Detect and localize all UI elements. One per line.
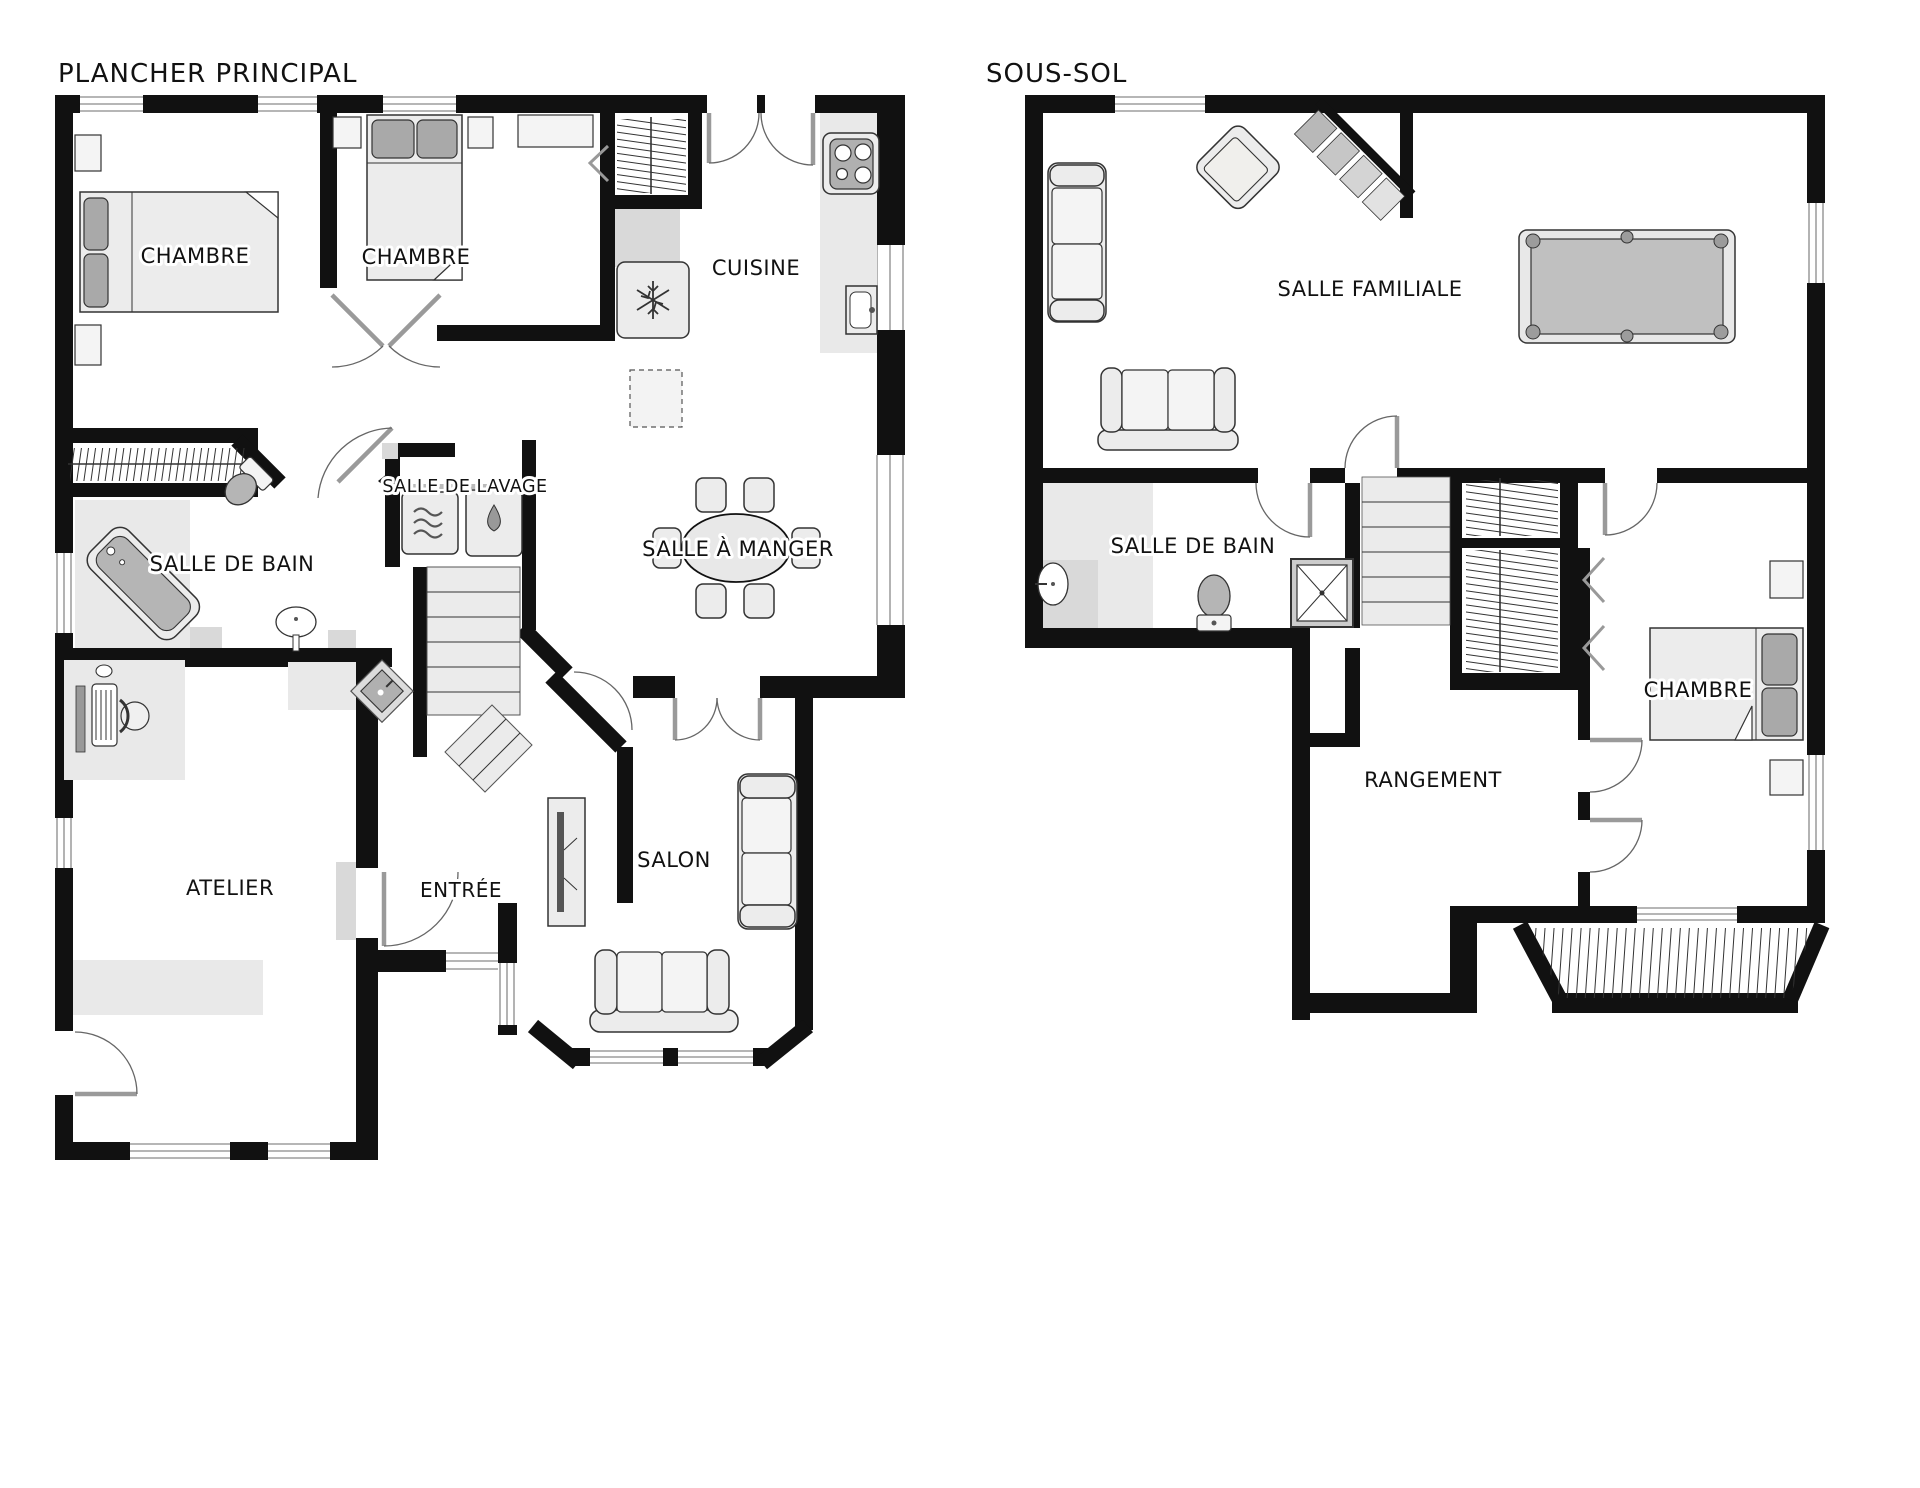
toilet — [1197, 575, 1231, 631]
sofa-cushion — [662, 952, 707, 1012]
straight-stairs — [1362, 477, 1450, 625]
plan-title-basement: SOUS-SOL — [986, 59, 1127, 89]
shower — [1291, 559, 1353, 627]
desk-monitor — [76, 686, 85, 752]
dresser — [518, 115, 593, 147]
tv-unit — [548, 798, 585, 926]
nightstand — [75, 135, 101, 171]
workbench — [73, 960, 263, 1015]
atelier-counter — [288, 662, 356, 710]
pillow — [84, 198, 108, 250]
pool-table — [1519, 230, 1735, 343]
room-label-salle-de-lavage: SALLE DE LAVAGE — [382, 477, 547, 497]
salon-furniture — [548, 774, 797, 1032]
armchair — [1193, 122, 1284, 213]
room-label-chambre-2: CHAMBRE — [362, 245, 471, 269]
room-label-salle-de-bain: SALLE DE BAIN — [150, 552, 315, 576]
room-label-salon: SALON — [637, 848, 711, 872]
deck-hatching — [1532, 928, 1812, 998]
basement-stairs — [1290, 98, 1450, 625]
room-label-chambre-sous-sol: CHAMBRE — [1644, 678, 1753, 702]
nightstand — [75, 325, 101, 365]
pillow — [372, 120, 414, 158]
room-label-chambre-1: CHAMBRE — [141, 244, 250, 268]
nightstand — [1770, 561, 1803, 598]
room-label-salle-de-bain-sous-sol: SALLE DE BAIN — [1111, 534, 1276, 558]
floorplan-page: PLANCHER PRINCIPAL SOUS-SOL — [0, 0, 1920, 1483]
nightstand — [468, 117, 493, 148]
room-label-salle-a-manger: SALLE À MANGER — [642, 536, 834, 561]
room-label-atelier: ATELIER — [186, 876, 274, 900]
room-label-cuisine: CUISINE — [712, 256, 800, 280]
sofa-cushion — [1168, 370, 1214, 430]
diagonal-stairs — [1290, 98, 1415, 223]
sofa-arm — [1101, 368, 1122, 432]
nightstand — [333, 117, 361, 148]
dishwasher — [630, 370, 682, 427]
pedestal-sink — [276, 607, 316, 637]
pillow — [84, 254, 108, 307]
pillow — [1762, 634, 1797, 685]
pillow — [417, 120, 457, 158]
nightstand — [1770, 760, 1803, 795]
room-label-entree: ENTRÉE — [420, 878, 502, 902]
door-stoop — [336, 862, 356, 940]
washer — [402, 492, 458, 554]
sofa-cushion — [617, 952, 662, 1012]
room-label-rangement: RANGEMENT — [1364, 768, 1502, 792]
room-label-salle-familiale: SALLE FAMILIALE — [1278, 277, 1463, 301]
kitchen-counter-2 — [615, 209, 680, 267]
pillow — [1762, 688, 1797, 736]
floorplan-canvas: PLANCHER PRINCIPAL SOUS-SOL — [0, 0, 1920, 1483]
plan-title-main-floor: PLANCHER PRINCIPAL — [58, 59, 357, 89]
sofa-arm — [707, 950, 729, 1014]
sofa-arm — [595, 950, 617, 1014]
sofa-base — [1098, 430, 1238, 450]
sofa-arm — [1214, 368, 1235, 432]
sofa-cushion — [1122, 370, 1168, 430]
